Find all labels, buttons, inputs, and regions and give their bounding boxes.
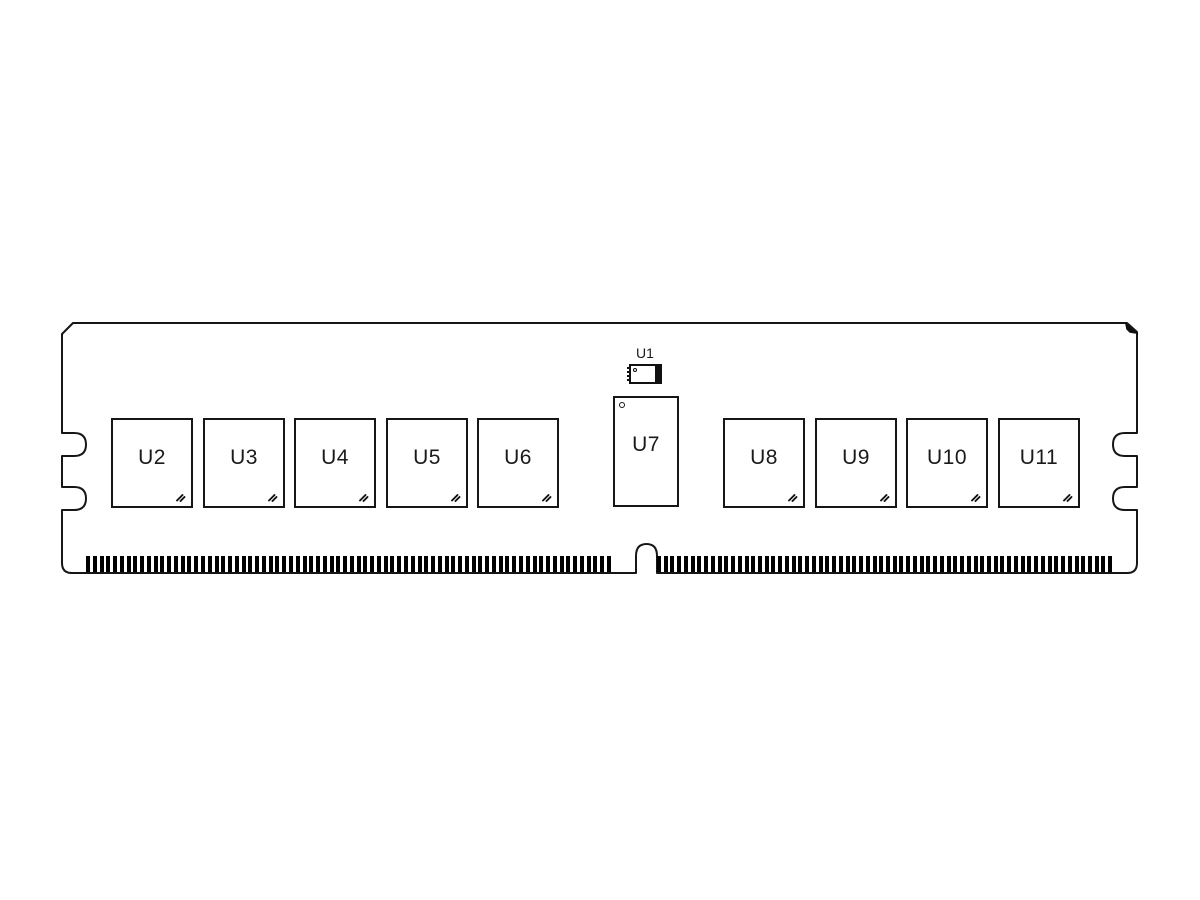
pin1-marker-icon xyxy=(175,491,186,502)
connector-pin xyxy=(566,556,570,572)
connector-pin xyxy=(697,556,701,572)
connector-pin xyxy=(1081,556,1085,572)
connector-pin xyxy=(1014,556,1018,572)
connector-pins-left xyxy=(86,556,612,572)
connector-pin xyxy=(1054,556,1058,572)
connector-pin xyxy=(160,556,164,572)
connector-pin xyxy=(913,556,917,572)
connector-pin xyxy=(1101,556,1105,572)
connector-pin xyxy=(607,556,611,572)
connector-pin xyxy=(664,556,668,572)
chip-u4: U4 xyxy=(294,418,376,508)
connector-pin xyxy=(920,556,924,572)
connector-pin xyxy=(519,556,523,572)
connector-pin xyxy=(812,556,816,572)
chip-u1-label: U1 xyxy=(629,345,661,361)
connector-pin xyxy=(933,556,937,572)
connector-pin xyxy=(1034,556,1038,572)
connector-pin xyxy=(778,556,782,572)
connector-pin xyxy=(424,556,428,572)
connector-pin xyxy=(960,556,964,572)
chip-u8: U8 xyxy=(723,418,805,508)
connector-pin xyxy=(357,556,361,572)
connector-pin xyxy=(154,556,158,572)
connector-pin xyxy=(377,556,381,572)
connector-pin xyxy=(899,556,903,572)
connector-pin xyxy=(86,556,90,572)
chip-pin xyxy=(627,367,631,369)
chip-label: U9 xyxy=(842,446,870,470)
connector-pin xyxy=(879,556,883,572)
connector-pin xyxy=(127,556,131,572)
connector-pin xyxy=(262,556,266,572)
connector-pin xyxy=(758,556,762,572)
chip-label: U4 xyxy=(321,446,349,470)
connector-pin xyxy=(1027,556,1031,572)
connector-pin xyxy=(974,556,978,572)
connector-pin xyxy=(323,556,327,572)
connector-pin xyxy=(255,556,259,572)
connector-pin xyxy=(221,556,225,572)
connector-pin xyxy=(947,556,951,572)
chip-label: U5 xyxy=(413,446,441,470)
connector-pin xyxy=(987,556,991,572)
connector-pin xyxy=(798,556,802,572)
connector-pin xyxy=(593,556,597,572)
chip-u1-band xyxy=(655,366,660,382)
connector-pin xyxy=(465,556,469,572)
connector-pin xyxy=(745,556,749,572)
connector-pin xyxy=(580,556,584,572)
chip-pin xyxy=(627,375,631,377)
connector-pin xyxy=(724,556,728,572)
connector-pin xyxy=(859,556,863,572)
connector-pin xyxy=(819,556,823,572)
connector-pin xyxy=(704,556,708,572)
connector-pin xyxy=(600,556,604,572)
connector-pin xyxy=(303,556,307,572)
connector-pin xyxy=(296,556,300,572)
connector-pin xyxy=(451,556,455,572)
connector-pin xyxy=(242,556,246,572)
chip-u2: U2 xyxy=(111,418,193,508)
connector-pin xyxy=(133,556,137,572)
connector-pin xyxy=(1068,556,1072,572)
connector-pin xyxy=(980,556,984,572)
connector-pin xyxy=(718,556,722,572)
connector-pin xyxy=(1041,556,1045,572)
chip-pin xyxy=(627,379,631,381)
connector-pin xyxy=(316,556,320,572)
connector-pin xyxy=(248,556,252,572)
pin1-dot-icon xyxy=(619,402,625,408)
connector-pin xyxy=(886,556,890,572)
connector-pin xyxy=(1061,556,1065,572)
chip-u7: U7 xyxy=(613,396,679,507)
connector-pin xyxy=(93,556,97,572)
pin1-marker-icon xyxy=(358,491,369,502)
connector-pin xyxy=(228,556,232,572)
connector-pin xyxy=(269,556,273,572)
connector-pin xyxy=(560,556,564,572)
connector-pin xyxy=(657,556,661,572)
connector-pin xyxy=(805,556,809,572)
connector-pin xyxy=(120,556,124,572)
pin1-marker-icon xyxy=(1062,491,1073,502)
pin1-marker-icon xyxy=(541,491,552,502)
connector-pin xyxy=(785,556,789,572)
connector-pin xyxy=(113,556,117,572)
connector-pin xyxy=(390,556,394,572)
connector-pin xyxy=(100,556,104,572)
connector-pin xyxy=(411,556,415,572)
connector-pin xyxy=(201,556,205,572)
connector-pin xyxy=(208,556,212,572)
connector-pin xyxy=(1021,556,1025,572)
connector-pin xyxy=(370,556,374,572)
chip-u10: U10 xyxy=(906,418,988,508)
connector-pin xyxy=(839,556,843,572)
connector-pin xyxy=(384,556,388,572)
connector-pin xyxy=(140,556,144,572)
chip-label: U10 xyxy=(927,446,967,470)
connector-pin xyxy=(275,556,279,572)
connector-pin xyxy=(1095,556,1099,572)
connector-pin xyxy=(765,556,769,572)
connector-pin xyxy=(478,556,482,572)
chip-u9: U9 xyxy=(815,418,897,508)
connector-pin xyxy=(106,556,110,572)
connector-pin xyxy=(893,556,897,572)
connector-pin xyxy=(472,556,476,572)
connector-pin xyxy=(866,556,870,572)
connector-pin xyxy=(431,556,435,572)
connector-pin xyxy=(343,556,347,572)
chip-u6: U6 xyxy=(477,418,559,508)
pin1-marker-icon xyxy=(267,491,278,502)
connector-pin xyxy=(526,556,530,572)
connector-pin xyxy=(691,556,695,572)
connector-pin xyxy=(363,556,367,572)
connector-pin xyxy=(533,556,537,572)
chip-u11: U11 xyxy=(998,418,1080,508)
connector-pin xyxy=(458,556,462,572)
connector-pin xyxy=(1048,556,1052,572)
connector-pin xyxy=(539,556,543,572)
connector-pin xyxy=(181,556,185,572)
connector-pin xyxy=(573,556,577,572)
connector-pin xyxy=(404,556,408,572)
connector-pin xyxy=(512,556,516,572)
connector-pin xyxy=(505,556,509,572)
connector-pin xyxy=(792,556,796,572)
connector-pin xyxy=(994,556,998,572)
connector-pin xyxy=(670,556,674,572)
connector-pin xyxy=(330,556,334,572)
pin1-marker-icon xyxy=(970,491,981,502)
connector-pin xyxy=(418,556,422,572)
connector-pin xyxy=(751,556,755,572)
chip-u1 xyxy=(629,364,662,384)
connector-pin xyxy=(187,556,191,572)
connector-pin xyxy=(397,556,401,572)
chip-label: U8 xyxy=(750,446,778,470)
connector-pin xyxy=(438,556,442,572)
connector-pin xyxy=(499,556,503,572)
connector-pin xyxy=(289,556,293,572)
connector-pin xyxy=(1000,556,1004,572)
connector-pin xyxy=(684,556,688,572)
chip-label: U6 xyxy=(504,446,532,470)
connector-pin xyxy=(967,556,971,572)
connector-pin xyxy=(825,556,829,572)
connector-pin xyxy=(1075,556,1079,572)
connector-pin xyxy=(852,556,856,572)
chip-label: U11 xyxy=(1020,446,1058,470)
chip-label: U7 xyxy=(632,433,660,457)
connector-pin xyxy=(235,556,239,572)
connector-pin xyxy=(677,556,681,572)
connector-pin xyxy=(1088,556,1092,572)
connector-pin xyxy=(336,556,340,572)
memory-module-diagram: U2 U3 U4 U5 U6 U8 U9 xyxy=(0,0,1200,900)
connector-pin xyxy=(906,556,910,572)
connector-pin xyxy=(846,556,850,572)
connector-pin xyxy=(194,556,198,572)
pin1-marker-icon xyxy=(787,491,798,502)
connector-pin xyxy=(167,556,171,572)
connector-pin xyxy=(940,556,944,572)
connector-pin xyxy=(738,556,742,572)
connector-pin xyxy=(711,556,715,572)
connector-pin xyxy=(147,556,151,572)
chip-label: U2 xyxy=(138,446,166,470)
chip-u3: U3 xyxy=(203,418,285,508)
connector-pin xyxy=(174,556,178,572)
chip-pin xyxy=(627,371,631,373)
connector-pin xyxy=(771,556,775,572)
chip-label: U3 xyxy=(230,446,258,470)
connector-pin xyxy=(350,556,354,572)
chip-u5: U5 xyxy=(386,418,468,508)
connector-pin xyxy=(926,556,930,572)
connector-pin xyxy=(587,556,591,572)
pin1-marker-icon xyxy=(450,491,461,502)
connector-pin xyxy=(873,556,877,572)
pin1-dot-icon xyxy=(633,368,637,372)
connector-pin xyxy=(953,556,957,572)
connector-pin xyxy=(546,556,550,572)
connector-pin xyxy=(1007,556,1011,572)
connector-pin xyxy=(553,556,557,572)
connector-pin xyxy=(832,556,836,572)
pin1-marker-icon xyxy=(879,491,890,502)
connector-pin xyxy=(492,556,496,572)
connector-pin xyxy=(309,556,313,572)
connector-pin xyxy=(215,556,219,572)
connector-pin xyxy=(445,556,449,572)
connector-pin xyxy=(1108,556,1112,572)
connector-pin xyxy=(282,556,286,572)
connector-pin xyxy=(731,556,735,572)
connector-pins-right xyxy=(657,556,1113,572)
connector-pin xyxy=(485,556,489,572)
